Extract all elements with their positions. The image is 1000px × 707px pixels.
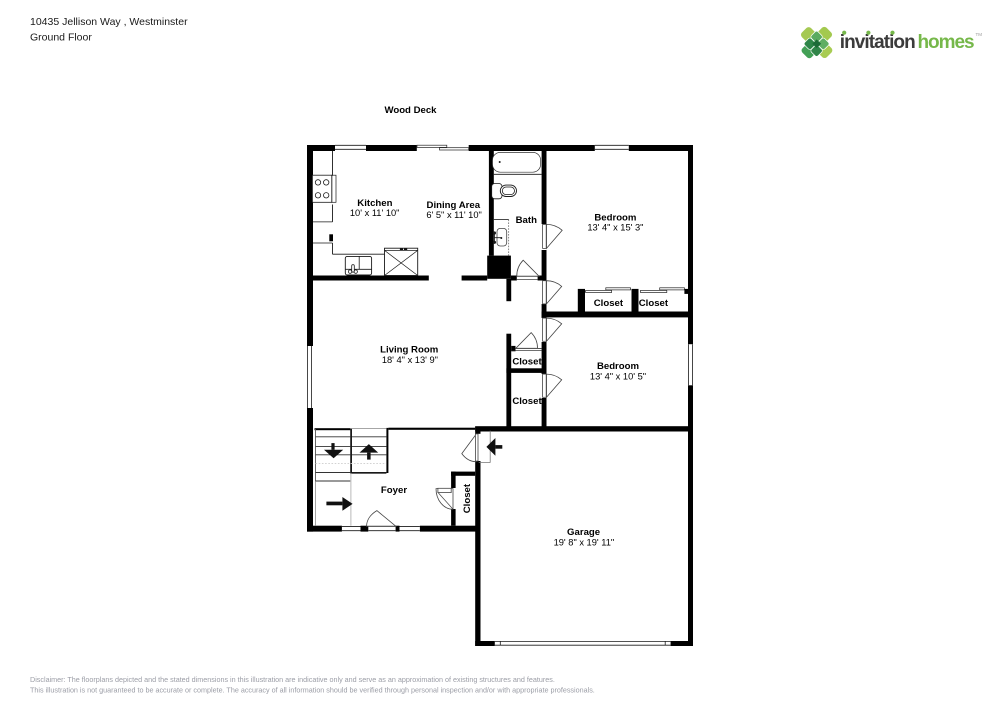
svg-text:Living Room: Living Room — [380, 345, 438, 356]
svg-text:6' 5" x 11' 10": 6' 5" x 11' 10" — [426, 210, 481, 220]
svg-text:Closet: Closet — [594, 298, 624, 309]
svg-text:Disclaimer: The floorplans dep: Disclaimer: The floorplans depicted and … — [30, 675, 555, 684]
svg-text:Closet: Closet — [512, 396, 542, 407]
svg-text:Closet: Closet — [639, 298, 669, 309]
svg-text:13' 4" x 10' 5": 13' 4" x 10' 5" — [590, 371, 646, 381]
svg-text:homes: homes — [918, 32, 974, 53]
svg-text:13' 4" x 15' 3": 13' 4" x 15' 3" — [587, 223, 643, 233]
svg-text:18' 4" x 13' 9": 18' 4" x 13' 9" — [382, 355, 438, 365]
svg-text:10' x 11' 10": 10' x 11' 10" — [350, 208, 400, 218]
svg-text:19' 8" x 19' 11": 19' 8" x 19' 11" — [554, 537, 615, 547]
svg-text:Garage: Garage — [567, 527, 600, 538]
svg-text:This illustration is not guara: This illustration is not guaranteed to b… — [30, 685, 595, 694]
svg-text:Bath: Bath — [516, 215, 537, 226]
svg-text:Foyer: Foyer — [381, 485, 407, 496]
svg-text:Ground Floor: Ground Floor — [30, 32, 92, 44]
svg-text:invitation: invitation — [840, 32, 915, 53]
svg-text:Closet: Closet — [512, 357, 542, 368]
svg-text:Wood Deck: Wood Deck — [384, 105, 437, 116]
svg-text:Closet: Closet — [462, 483, 473, 513]
svg-text:10435 Jellison Way , Westminst: 10435 Jellison Way , Westminster — [30, 16, 188, 28]
svg-text:TM: TM — [976, 32, 983, 37]
